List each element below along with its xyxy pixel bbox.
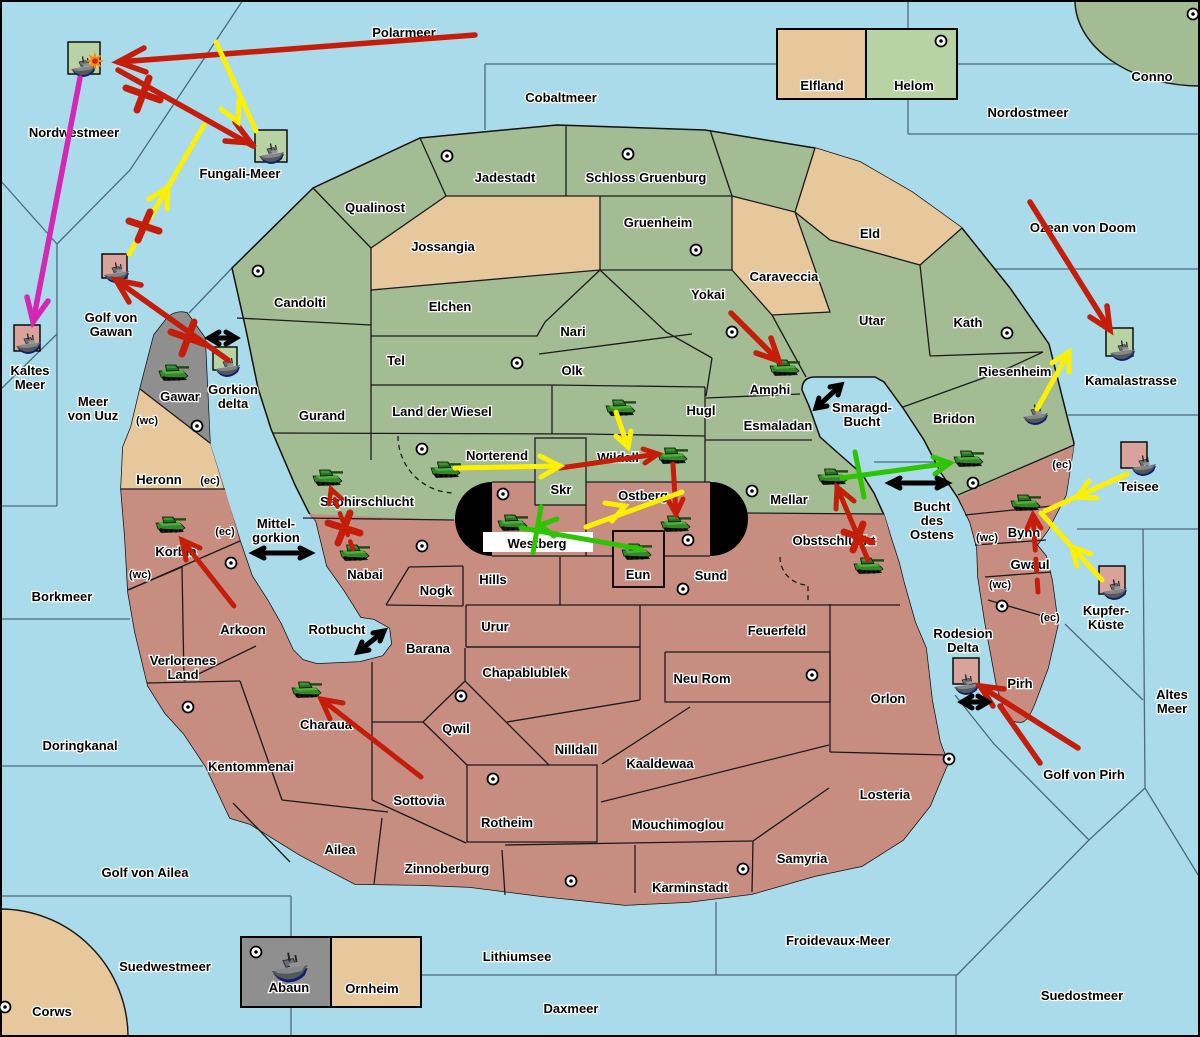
svg-text:Gurand: Gurand (299, 408, 345, 423)
svg-text:Gwaul: Gwaul (1010, 557, 1049, 572)
svg-text:Daxmeer: Daxmeer (544, 1001, 599, 1016)
svg-text:(wc): (wc) (976, 532, 998, 544)
svg-text:Qwil: Qwil (442, 721, 469, 736)
svg-text:Nordwestmeer: Nordwestmeer (29, 125, 119, 140)
svg-text:Nilldall: Nilldall (555, 742, 598, 757)
svg-text:Elchen: Elchen (429, 299, 472, 314)
svg-text:Barana: Barana (406, 641, 451, 656)
svg-text:Rotheim: Rotheim (481, 815, 533, 830)
svg-text:Jadestadt: Jadestadt (475, 170, 536, 185)
svg-text:Kath: Kath (954, 315, 983, 330)
svg-text:Mouchimoglou: Mouchimoglou (632, 817, 724, 832)
svg-text:Nordostmeer: Nordostmeer (988, 105, 1069, 120)
svg-text:Yokai: Yokai (691, 287, 725, 302)
svg-text:Chapablublek: Chapablublek (482, 665, 568, 680)
svg-text:Urur: Urur (481, 619, 508, 634)
svg-text:Eld: Eld (860, 226, 880, 241)
svg-text:Losteria: Losteria (860, 787, 911, 802)
svg-text:Heronn: Heronn (136, 472, 182, 487)
svg-text:Zinnoberburg: Zinnoberburg (405, 861, 490, 876)
svg-text:Arkoon: Arkoon (220, 622, 266, 637)
svg-text:Kupfer-Küste: Kupfer-Küste (1083, 603, 1129, 632)
svg-text:Gruenheim: Gruenheim (624, 215, 693, 230)
svg-text:(wc): (wc) (989, 579, 1011, 591)
svg-text:Froidevaux-Meer: Froidevaux-Meer (786, 933, 890, 948)
svg-text:Rotbucht: Rotbucht (308, 622, 366, 637)
svg-text:Norterend: Norterend (466, 448, 528, 463)
svg-text:Conno: Conno (1131, 69, 1172, 84)
svg-text:Nabai: Nabai (347, 567, 382, 582)
svg-text:Helom: Helom (894, 78, 934, 93)
svg-text:Neu Rom: Neu Rom (673, 671, 730, 686)
svg-text:Kentommenai: Kentommenai (208, 759, 294, 774)
svg-text:Samyria: Samyria (777, 851, 828, 866)
svg-text:KaltesMeer: KaltesMeer (10, 363, 49, 392)
svg-text:Eun: Eun (626, 567, 651, 582)
svg-text:Suedostmeer: Suedostmeer (1041, 988, 1123, 1003)
svg-text:Lithiumsee: Lithiumsee (483, 949, 552, 964)
svg-text:Qualinost: Qualinost (345, 200, 406, 215)
svg-text:Elfland: Elfland (800, 78, 843, 93)
svg-text:Teisee: Teisee (1119, 479, 1159, 494)
svg-text:Nogk: Nogk (420, 583, 453, 598)
svg-text:Ornheim: Ornheim (345, 981, 398, 996)
svg-text:Olk: Olk (562, 363, 584, 378)
svg-text:Golf von Ailea: Golf von Ailea (102, 865, 190, 880)
svg-text:Bridon: Bridon (933, 411, 975, 426)
svg-text:(ec): (ec) (200, 475, 220, 487)
svg-text:(ec): (ec) (215, 526, 235, 538)
svg-text:(ec): (ec) (1052, 459, 1072, 471)
svg-text:Hugl: Hugl (687, 403, 716, 418)
svg-text:Feuerfeld: Feuerfeld (748, 623, 807, 638)
svg-text:(wc): (wc) (129, 569, 151, 581)
svg-text:Hills: Hills (479, 572, 506, 587)
svg-text:AltesMeer: AltesMeer (1156, 687, 1188, 716)
svg-text:Esmaladan: Esmaladan (744, 418, 813, 433)
svg-text:Fungali-Meer: Fungali-Meer (200, 166, 281, 181)
svg-text:Ailea: Ailea (324, 842, 356, 857)
svg-text:Pirh: Pirh (1007, 676, 1032, 691)
svg-text:Corws: Corws (32, 1004, 72, 1019)
svg-text:Cobaltmeer: Cobaltmeer (525, 90, 597, 105)
svg-text:(wc): (wc) (136, 415, 158, 427)
svg-text:Tel: Tel (387, 353, 405, 368)
svg-text:Kaaldewaa: Kaaldewaa (626, 756, 694, 771)
svg-text:Doringkanal: Doringkanal (42, 738, 117, 753)
svg-text:Golf vonGawan: Golf vonGawan (85, 310, 138, 339)
svg-text:Mittel-gorkion: Mittel-gorkion (252, 516, 300, 545)
svg-text:Riesenheim: Riesenheim (979, 364, 1052, 379)
svg-text:Orlon: Orlon (871, 691, 906, 706)
svg-text:(ec): (ec) (1040, 612, 1060, 624)
svg-text:Amphi: Amphi (750, 382, 790, 397)
svg-text:Suedwestmeer: Suedwestmeer (119, 959, 211, 974)
svg-text:Gawar: Gawar (160, 389, 200, 404)
svg-text:Utar: Utar (859, 313, 885, 328)
svg-text:Golf von Pirh: Golf von Pirh (1043, 767, 1125, 782)
svg-text:Sund: Sund (695, 568, 728, 583)
svg-text:Caraveccia: Caraveccia (750, 269, 819, 284)
svg-text:Nari: Nari (560, 324, 585, 339)
svg-text:Sottovia: Sottovia (393, 793, 445, 808)
svg-text:Candolti: Candolti (274, 295, 326, 310)
svg-text:Kamalastrasse: Kamalastrasse (1085, 373, 1177, 388)
svg-text:Mellar: Mellar (770, 492, 808, 507)
svg-text:Skr: Skr (551, 482, 572, 497)
svg-text:Borkmeer: Borkmeer (32, 589, 93, 604)
svg-text:Land der Wiesel: Land der Wiesel (392, 404, 492, 419)
svg-text:Karminstadt: Karminstadt (652, 880, 729, 895)
svg-text:Schloss Gruenburg: Schloss Gruenburg (586, 170, 707, 185)
svg-text:Jossangia: Jossangia (411, 239, 475, 254)
